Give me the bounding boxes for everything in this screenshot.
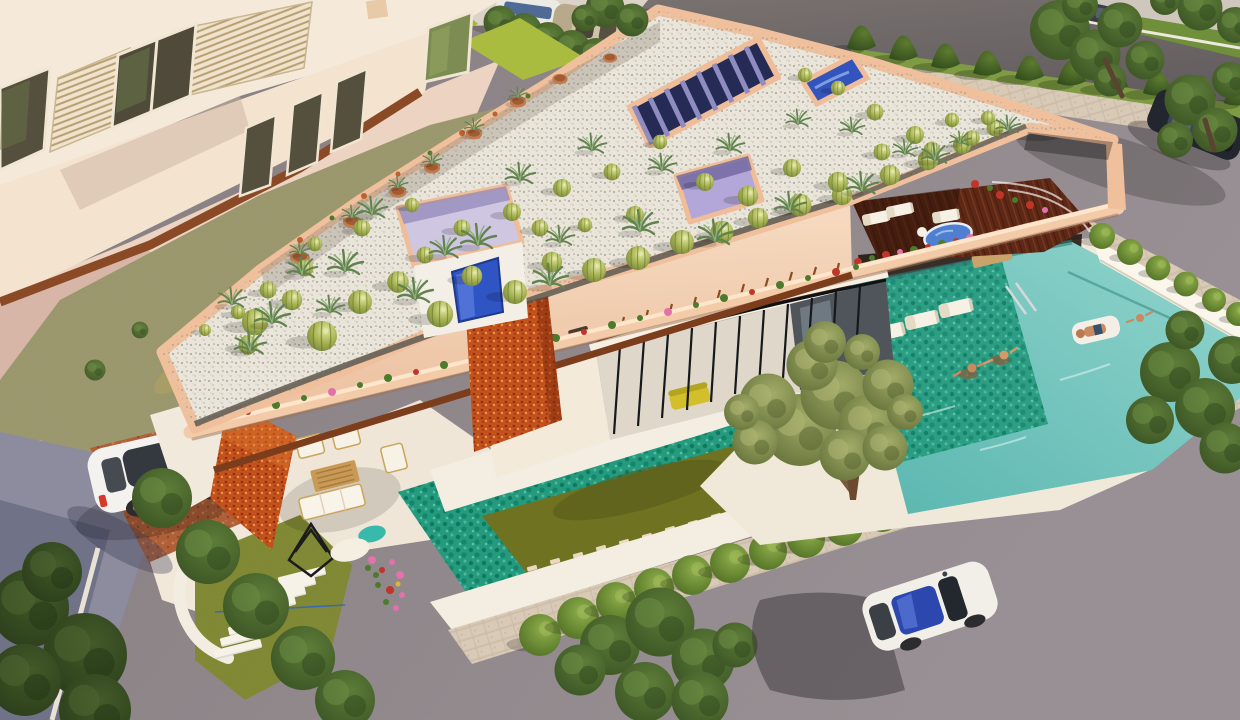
dot — [996, 191, 1004, 199]
tree — [572, 4, 599, 31]
tree — [615, 662, 675, 720]
tree — [223, 573, 289, 639]
tree — [616, 3, 649, 36]
dot — [971, 180, 979, 188]
dot — [384, 374, 392, 382]
tree — [1166, 311, 1205, 350]
dot — [365, 565, 371, 571]
dot — [399, 592, 405, 598]
dot — [869, 255, 875, 261]
dot — [853, 264, 859, 270]
tree — [1126, 41, 1165, 80]
dot — [396, 172, 401, 177]
olive — [863, 426, 908, 471]
dot — [389, 559, 395, 565]
tree — [132, 468, 192, 528]
dot — [386, 586, 394, 594]
dot — [396, 582, 401, 587]
dot — [379, 567, 385, 573]
dot — [368, 556, 376, 564]
dot — [493, 112, 498, 117]
dot — [776, 281, 784, 289]
dot — [581, 329, 587, 335]
dot — [301, 395, 307, 401]
dot — [1012, 197, 1018, 203]
dot — [361, 193, 367, 199]
tree — [176, 520, 240, 584]
tree — [1098, 3, 1143, 48]
dot — [749, 289, 755, 295]
tree — [1126, 396, 1174, 444]
chimney — [366, 0, 388, 19]
dot — [330, 216, 335, 221]
dot — [357, 382, 363, 388]
dot — [720, 294, 728, 302]
olive — [820, 430, 871, 481]
dot — [373, 572, 379, 578]
green-glass-highlight — [429, 25, 450, 77]
tree — [555, 645, 606, 696]
dot — [383, 599, 389, 605]
dot — [693, 302, 699, 308]
dot — [440, 361, 448, 369]
tree — [713, 623, 758, 668]
dot — [987, 185, 993, 191]
dot — [328, 388, 336, 396]
dot — [637, 315, 643, 321]
tall-window — [240, 115, 276, 196]
tree — [22, 542, 82, 602]
dot — [1026, 201, 1034, 209]
dot — [526, 94, 531, 99]
olive — [887, 394, 923, 430]
dot — [375, 582, 381, 588]
tall-window — [331, 69, 367, 152]
dot — [396, 571, 404, 579]
tall-window — [287, 92, 323, 175]
dot — [413, 369, 419, 375]
olive — [724, 394, 760, 430]
architectural-rendering — [0, 0, 1240, 720]
dot — [805, 275, 811, 281]
dot — [608, 321, 616, 329]
tree — [1157, 122, 1193, 158]
tree — [85, 360, 106, 381]
dot — [664, 308, 672, 316]
dot — [393, 605, 399, 611]
olive — [844, 334, 880, 370]
dot — [832, 268, 840, 276]
dot — [1042, 207, 1048, 213]
dot — [552, 334, 560, 342]
tree — [132, 322, 149, 339]
dot — [297, 237, 303, 243]
olive — [804, 321, 846, 363]
